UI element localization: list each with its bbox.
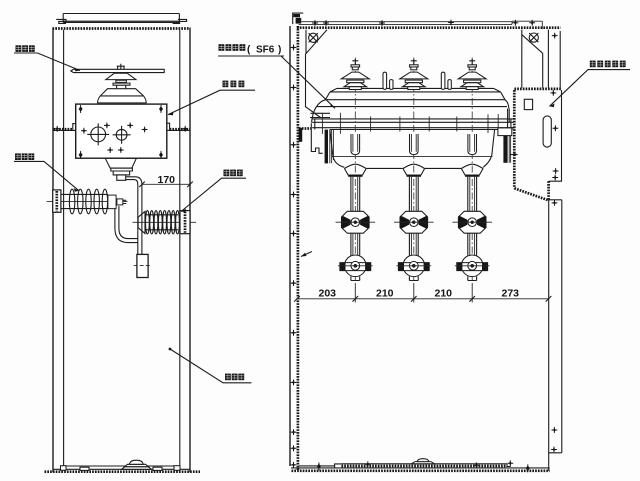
svg-text:210: 210 (435, 288, 453, 300)
svg-text:170: 170 (158, 174, 176, 186)
svg-text:210: 210 (376, 288, 394, 300)
svg-text:273: 273 (502, 288, 520, 300)
svg-text:SF6: SF6 (256, 45, 275, 56)
svg-text:203: 203 (319, 288, 337, 300)
svg-text:): ) (278, 45, 281, 56)
